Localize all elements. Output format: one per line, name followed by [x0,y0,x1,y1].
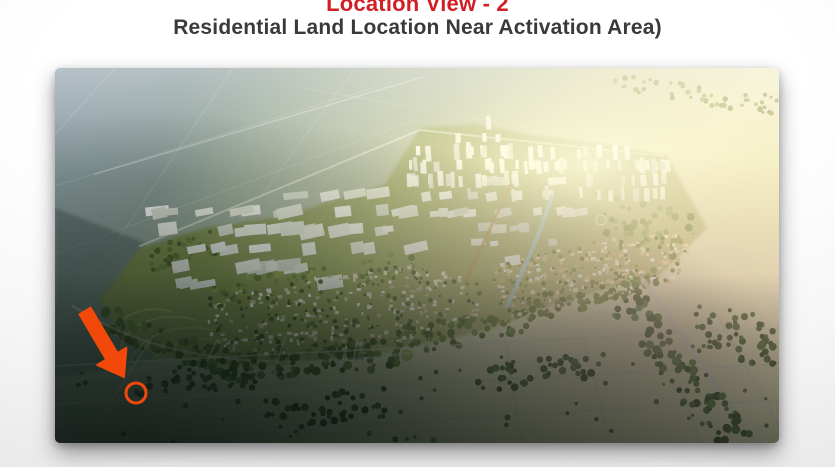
page-subtitle: Residential Land Location Near Activatio… [0,16,835,40]
aerial-masterplan-figure [55,68,779,443]
slide-background: Location View - 2 Residential Land Locat… [0,0,835,467]
page-title: Location View - 2 [0,0,835,15]
slide-header: Location View - 2 Residential Land Locat… [0,0,835,40]
aerial-render-image [55,68,779,443]
